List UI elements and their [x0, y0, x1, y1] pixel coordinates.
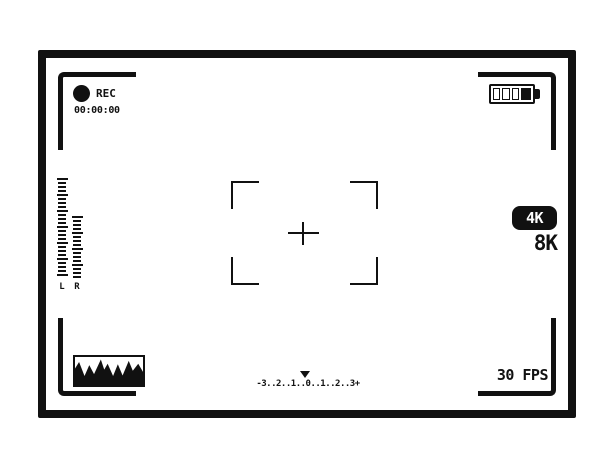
- meter-bar: [73, 252, 81, 254]
- meter-bar: [58, 222, 66, 224]
- meter-bar: [73, 224, 81, 226]
- meter-bar: [58, 262, 66, 264]
- meter-bar: [72, 264, 83, 266]
- meter-bar: [57, 242, 68, 244]
- meter-bar: [73, 260, 81, 262]
- meter-bar: [73, 276, 81, 278]
- battery-cell-empty: [512, 88, 519, 100]
- histogram-shape: [75, 360, 143, 385]
- meter-bar: [57, 258, 68, 260]
- battery-cell-empty: [493, 88, 500, 100]
- rec-indicator[interactable]: REC: [73, 85, 116, 102]
- meter-bar: [57, 274, 68, 276]
- meter-bar: [57, 178, 68, 180]
- exposure-marker-icon: [300, 371, 310, 378]
- audio-meter-right-label: R: [71, 282, 83, 292]
- meter-bar: [58, 270, 66, 272]
- meter-bar: [58, 206, 66, 208]
- meter-bar: [57, 226, 68, 228]
- meter-bar: [58, 250, 66, 252]
- exposure-scale: -3..2..1..0..1..2..3+: [208, 379, 408, 389]
- meter-bar: [57, 194, 68, 196]
- meter-bar: [58, 218, 66, 220]
- battery-cells: [493, 88, 531, 100]
- fps-label[interactable]: 30 FPS: [478, 366, 548, 384]
- resolution-8k-label[interactable]: 8K: [513, 231, 557, 255]
- meter-bar: [72, 216, 83, 218]
- meter-bar: [58, 186, 66, 188]
- crosshair-icon: [302, 222, 304, 245]
- focus-bracket-top-right: [350, 181, 378, 209]
- meter-bar: [58, 246, 66, 248]
- rec-dot-icon: [73, 85, 90, 102]
- focus-bracket-bottom-left: [231, 257, 259, 285]
- camera-viewfinder: REC 00:00:00 L R 4K 8K 30 FPS -3..2..1..…: [0, 0, 612, 468]
- meter-bar: [58, 190, 66, 192]
- battery-body: [489, 84, 535, 104]
- meter-bar: [58, 230, 66, 232]
- meter-bar: [73, 256, 81, 258]
- audio-meter-left-label: L: [56, 282, 68, 292]
- meter-bar: [58, 238, 66, 240]
- battery-cell-filled: [521, 88, 531, 100]
- corner-bracket-bottom-right: [478, 318, 556, 396]
- battery-cell-empty: [502, 88, 509, 100]
- meter-bar: [58, 234, 66, 236]
- meter-bar: [57, 210, 68, 212]
- meter-bar: [58, 202, 66, 204]
- battery-terminal: [535, 89, 540, 99]
- histogram: [73, 355, 145, 387]
- meter-bar: [72, 232, 83, 234]
- rec-label: REC: [96, 87, 116, 100]
- meter-bar: [73, 240, 81, 242]
- audio-meter-left: [56, 178, 68, 278]
- focus-bracket-top-left: [231, 181, 259, 209]
- audio-meter-right: [71, 216, 83, 280]
- meter-bar: [73, 272, 81, 274]
- meter-bar: [58, 266, 66, 268]
- meter-bar: [73, 268, 81, 270]
- meter-bar: [73, 236, 81, 238]
- meter-bar: [72, 248, 83, 250]
- timecode: 00:00:00: [74, 105, 120, 116]
- resolution-4k-badge[interactable]: 4K: [512, 206, 557, 230]
- battery-icon: [489, 84, 540, 104]
- meter-bar: [73, 244, 81, 246]
- meter-bar: [58, 214, 66, 216]
- meter-bar: [73, 228, 81, 230]
- focus-bracket-bottom-right: [350, 257, 378, 285]
- meter-bar: [58, 254, 66, 256]
- meter-bar: [73, 220, 81, 222]
- meter-bar: [58, 198, 66, 200]
- meter-bar: [58, 182, 66, 184]
- histogram-chart: [75, 357, 143, 385]
